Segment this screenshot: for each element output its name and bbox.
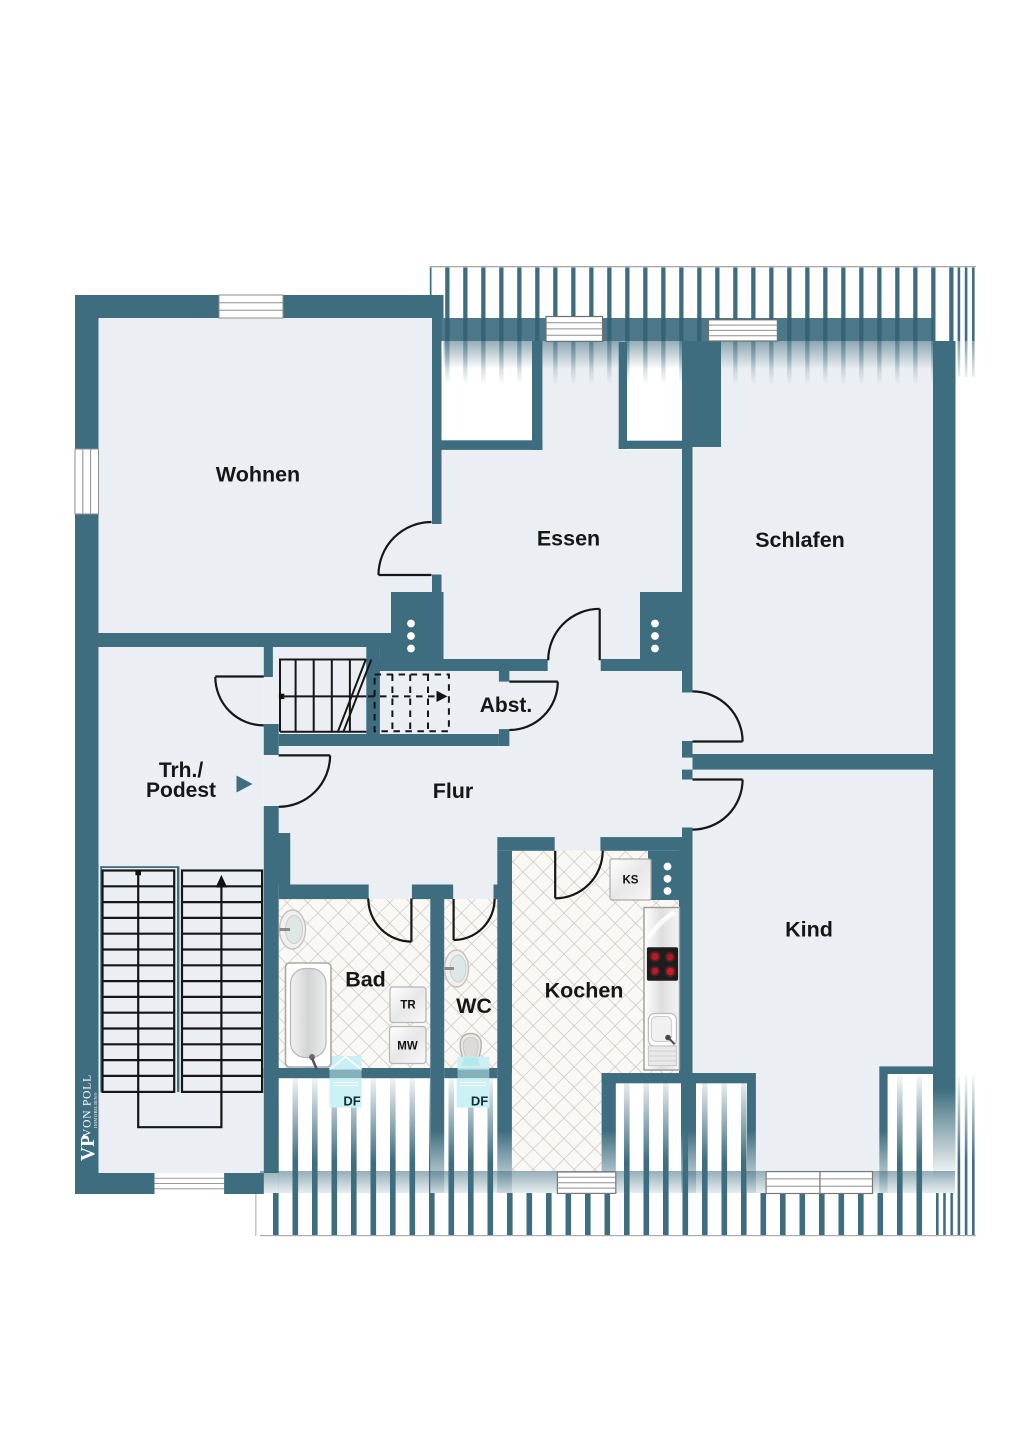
svg-text:WC: WC (456, 994, 492, 1018)
svg-text:TR: TR (400, 1000, 416, 1012)
svg-text:VP: VP (78, 1135, 99, 1161)
svg-text:IMMOBILIEN®: IMMOBILIEN® (93, 1092, 98, 1128)
svg-text:VON POLL: VON POLL (82, 1074, 94, 1137)
svg-text:Abst.: Abst. (480, 694, 533, 717)
svg-text:Flur: Flur (433, 779, 474, 803)
svg-text:Essen: Essen (537, 527, 600, 551)
svg-text:Kochen: Kochen (545, 979, 624, 1003)
svg-text:DF: DF (343, 1094, 360, 1109)
svg-text:KS: KS (623, 875, 639, 887)
svg-text:DF: DF (471, 1094, 488, 1109)
svg-text:Schlafen: Schlafen (755, 528, 845, 552)
svg-text:MW: MW (397, 1041, 418, 1053)
svg-text:Bad: Bad (345, 968, 386, 992)
svg-text:Wohnen: Wohnen (216, 463, 300, 487)
svg-text:Podest: Podest (146, 779, 216, 802)
svg-text:Kind: Kind (785, 918, 833, 942)
